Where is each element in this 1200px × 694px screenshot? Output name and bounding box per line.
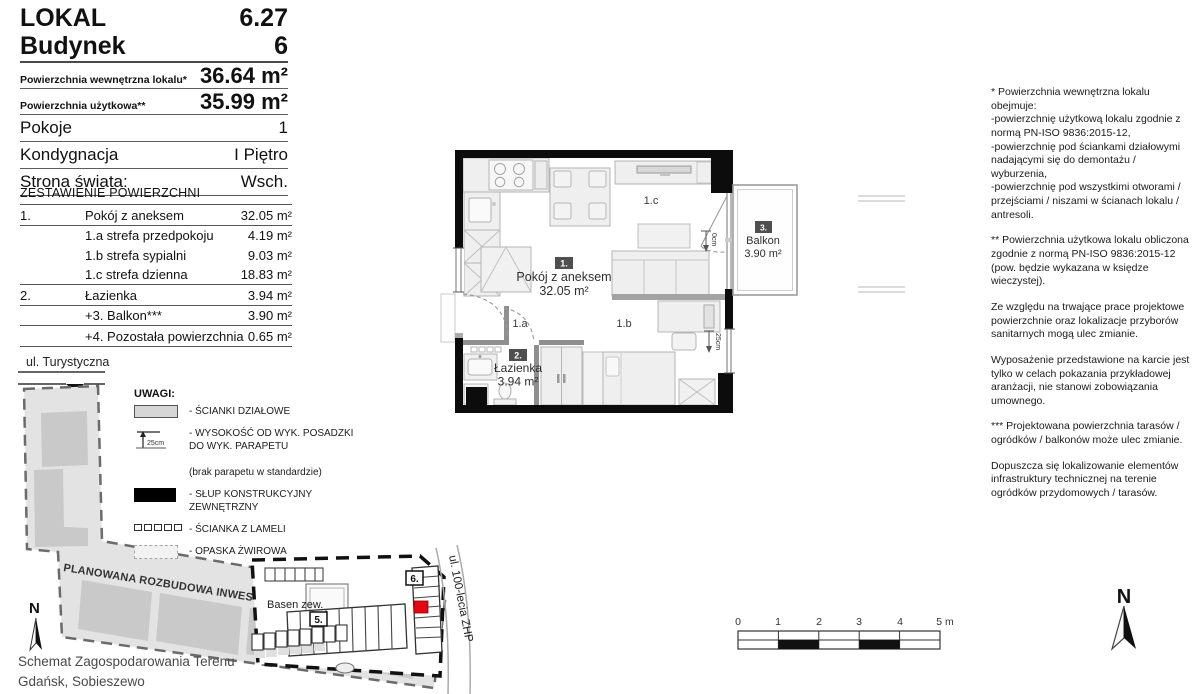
pool-label: Basen zew. xyxy=(267,599,323,611)
balcony-name: Balkon xyxy=(746,235,780,247)
area-table-title: ZESTAWIENIE POWIERZCHNI xyxy=(20,186,292,205)
building-5-label: 5. xyxy=(314,615,323,626)
table-row: 1.a strefa przedpokoju 4.19 m² xyxy=(20,226,292,246)
rooms-value: 1 xyxy=(279,118,288,138)
unit-header: LOKAL 6.27 Budynek 6 Powierzchnia wewnęt… xyxy=(20,4,288,196)
room-1-badge-text: 1. xyxy=(560,259,568,269)
column-swatch-icon xyxy=(134,488,182,502)
usable-area-row: Powierzchnia użytkowa** 35.99 m² xyxy=(20,89,288,115)
room-2-name: Łazienka xyxy=(494,361,542,375)
zone-1a-label: 1.a xyxy=(512,318,528,330)
gravel-strip-swatch-icon xyxy=(134,545,182,559)
usable-area-value: 35.99 m² xyxy=(200,90,288,113)
svg-text:25cm: 25cm xyxy=(147,440,164,447)
zone-1b-label: 1.b xyxy=(616,318,631,330)
svg-text:0cm: 0cm xyxy=(710,233,717,246)
table-row: 1.b strefa sypialni 9.03 m² xyxy=(20,245,292,265)
room-2-badge-text: 2. xyxy=(514,351,522,361)
lokal-row: LOKAL 6.27 xyxy=(20,4,288,32)
street-top-label: ul. Turystyczna xyxy=(26,355,109,369)
floor-plan: 3. Balkon 3.90 m² 0cm 25cm 1. P xyxy=(441,150,905,413)
scale-tick-4: 4 xyxy=(897,616,903,628)
budynek-label: Budynek xyxy=(20,32,126,60)
internal-area-row: Powierzchnia wewnętrzna lokalu* 36.64 m² xyxy=(20,63,288,89)
entrance-landing xyxy=(441,294,455,342)
partition-wall-swatch-icon xyxy=(134,405,182,418)
lokal-label: LOKAL xyxy=(20,4,106,32)
svg-text:N: N xyxy=(29,600,40,617)
usable-area-label: Powierzchnia użytkowa** xyxy=(20,100,145,112)
internal-area-label: Powierzchnia wewnętrzna lokalu* xyxy=(20,74,187,86)
scale-tick-2: 2 xyxy=(816,616,822,628)
unit-627-location-marker xyxy=(414,601,428,613)
note-usable-area: ** Powierzchnia użytkowa lokalu obliczon… xyxy=(991,234,1192,289)
legend-item-partition-walls: - ŚCIANKI DZIAŁOWE xyxy=(134,405,359,418)
svg-text:25cm: 25cm xyxy=(714,333,721,350)
sill-height-symbol-icon: 25cm xyxy=(134,427,182,458)
legend-item-sill-height: 25cm - WYSOKOŚĆ OD WYK. POSADZKI DO WYK.… xyxy=(134,427,359,479)
street-right-label: ul. 100-lecia ZHP xyxy=(446,554,475,643)
scale-tick-3: 3 xyxy=(856,616,862,628)
note-terrace-area: *** Projektowana powierzchnia tarasów / … xyxy=(991,420,1192,447)
site-caption-line2: Gdańsk, Sobieszewo xyxy=(18,674,145,689)
scale-bar: 0 1 2 3 4 5 m xyxy=(735,616,954,649)
budynek-row: Budynek 6 xyxy=(20,32,288,63)
note-internal-area: * Powierzchnia wewnętrzna lokalu obejmuj… xyxy=(991,86,1192,222)
rooms-label: Pokoje xyxy=(20,118,72,138)
rooms-row: Pokoje 1 xyxy=(20,115,288,142)
storey-row: Kondygnacja I Piętro xyxy=(20,142,288,169)
neighbour-wall-lines xyxy=(858,196,905,292)
building-6-label: 6. xyxy=(410,574,419,585)
storey-value: I Piętro xyxy=(234,145,288,165)
window-sill-height-annotation: 25cm xyxy=(704,331,721,353)
scale-tick-0: 0 xyxy=(735,616,741,628)
table-row: 1.c strefa dzienna 18.83 m² xyxy=(20,265,292,286)
lamella-wall-swatch-icon xyxy=(134,523,182,531)
scale-tick-1: 1 xyxy=(775,616,781,628)
site-caption-line1: Schemat Zagospodarowania Terenu xyxy=(18,654,235,669)
table-row: +3. Balkon*** 3.90 m² xyxy=(20,306,292,327)
floor-plan-sheet: 3. Balkon 3.90 m² 0cm 25cm 1. P xyxy=(0,0,1200,694)
north-compass-label: N xyxy=(1117,586,1131,608)
lokal-number: 6.27 xyxy=(239,4,288,32)
scale-tick-5: 5 m xyxy=(936,616,954,628)
table-row: +4. Pozostała powierzchnia 0.65 m² xyxy=(20,326,292,347)
legend-item-lamella-wall: - ŚCIANKA Z LAMELI xyxy=(134,523,359,536)
footnotes: * Powierzchnia wewnętrzna lokalu obejmuj… xyxy=(991,86,1192,513)
note-design-changes: Ze względu na trwające prace projektowe … xyxy=(991,301,1192,342)
table-row: 1. Pokój z aneksem 32.05 m² xyxy=(20,205,292,226)
budynek-number: 6 xyxy=(274,32,288,60)
legend-title: UWAGI: xyxy=(134,388,359,400)
north-compass: N xyxy=(1112,586,1136,649)
room-1-area: 32.05 m² xyxy=(539,284,588,298)
balcony-area: 3.90 m² xyxy=(744,248,782,260)
note-infrastructure: Dopuszcza się lokalizowanie elementów in… xyxy=(991,460,1192,501)
legend-sill-note: (brak parapetu w standardzie) xyxy=(189,467,322,478)
legend: UWAGI: - ŚCIANKI DZIAŁOWE 25cm - WYSOKOŚ… xyxy=(134,388,359,568)
balcony-badge-text: 3. xyxy=(760,223,767,233)
balcony: 3. Balkon 3.90 m² xyxy=(733,185,797,295)
storey-label: Kondygnacja xyxy=(20,145,118,165)
zone-1c-label: 1.c xyxy=(644,195,659,207)
internal-area-value: 36.64 m² xyxy=(200,64,288,87)
room-1-name: Pokój z aneksem xyxy=(516,270,611,284)
legend-item-gravel-strip: - OPASKA ŻWIROWA xyxy=(134,545,359,559)
area-summary-table: ZESTAWIENIE POWIERZCHNI 1. Pokój z aneks… xyxy=(20,186,292,347)
note-furnishing: Wyposażenie przedstawione na karcie jest… xyxy=(991,354,1192,409)
legend-item-structural-column: - SŁUP KONSTRUKCYJNY ZEWNĘTRZNY xyxy=(134,488,359,514)
room-2-area: 3.94 m² xyxy=(498,375,539,389)
site-north-arrow: N xyxy=(29,600,42,650)
table-row: 2. Łazienka 3.94 m² xyxy=(20,285,292,306)
